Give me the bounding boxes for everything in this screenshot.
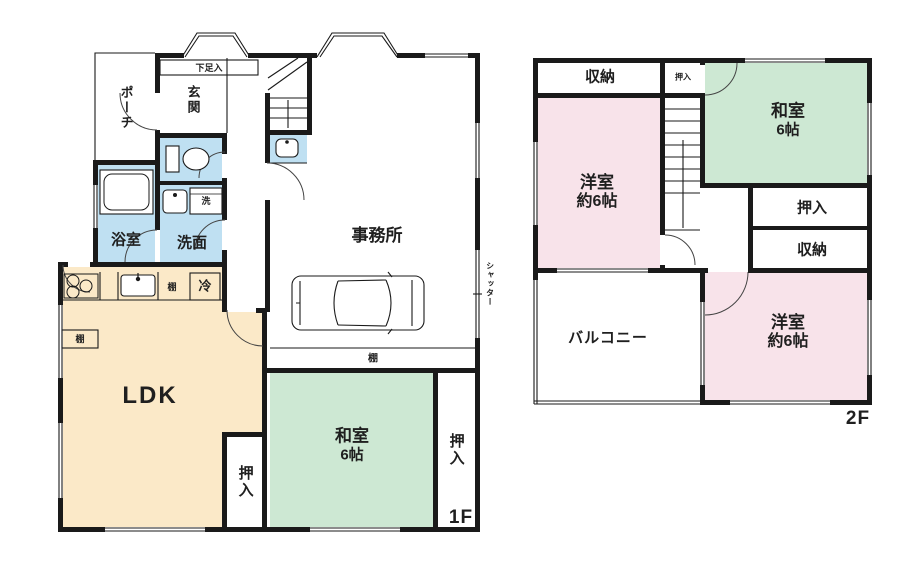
label-1f-office: 事務所: [352, 226, 403, 246]
label-2f-western-room-1-size: 約6帖: [577, 193, 618, 211]
car-outline: [292, 272, 424, 334]
label-2f-western-room-2: 洋室 約6帖: [768, 313, 809, 351]
label-2f-western-room-1: 洋室 約6帖: [577, 173, 618, 211]
label-1f-japanese-room-name: 和室: [335, 427, 369, 447]
label-2f-storage-nw: 収納: [585, 68, 615, 85]
label-1f-closet-ldk: 押入: [236, 465, 253, 499]
label-1f-shelf-office: 棚: [368, 353, 378, 365]
label-1f-floor-tag: 1F: [449, 507, 473, 529]
label-2f-storage-mid: 収納: [797, 241, 827, 258]
label-2f-western-room-1-name: 洋室: [577, 173, 618, 193]
label-1f-japanese-room-size: 6帖: [335, 446, 369, 463]
label-1f-washroom: 洗面: [177, 234, 207, 251]
room-1f-washroom: [160, 185, 222, 265]
label-2f-japanese-room-size: 6帖: [771, 121, 805, 138]
label-1f-shelf-kitchen: 棚: [167, 282, 176, 292]
room-1f-bath: [98, 165, 155, 265]
label-1f-laundry: 洗: [201, 196, 210, 206]
label-1f-entrance: 玄関: [185, 85, 200, 115]
room-1f-ldk-extension: [222, 312, 265, 435]
label-2f-closet-mid: 押入: [797, 199, 827, 216]
label-1f-japanese-room: 和室 6帖: [335, 427, 369, 464]
label-1f-shoe-storage: 下足入: [195, 63, 222, 73]
label-2f-closet-top: 押入: [675, 72, 691, 81]
label-1f-fridge: 冷: [198, 280, 211, 295]
room-1f-sink-nook: [270, 133, 307, 163]
label-2f-western-room-2-size: 約6帖: [768, 333, 809, 351]
label-2f-japanese-room: 和室 6帖: [771, 102, 805, 139]
floorplan-page: ポーチ 下足入 玄関 浴室 洗面 洗 事務所 シャッター LDK 冷 棚 棚 棚…: [0, 0, 907, 563]
label-2f-japanese-room-name: 和室: [771, 102, 805, 122]
label-1f-bath: 浴室: [111, 231, 141, 248]
label-1f-ldk: LDK: [122, 382, 177, 410]
label-2f-balcony: バルコニー: [568, 329, 648, 346]
label-1f-closet-washitsu: 押入: [447, 433, 464, 467]
label-1f-shutter: シャッター: [485, 262, 494, 307]
room-1f-toilet: [160, 135, 222, 182]
label-2f-western-room-2-name: 洋室: [768, 313, 809, 333]
label-2f-floor-tag: 2F: [846, 408, 870, 430]
label-1f-porch: ポーチ: [118, 86, 133, 131]
label-1f-shelf-wall: 棚: [75, 334, 84, 344]
